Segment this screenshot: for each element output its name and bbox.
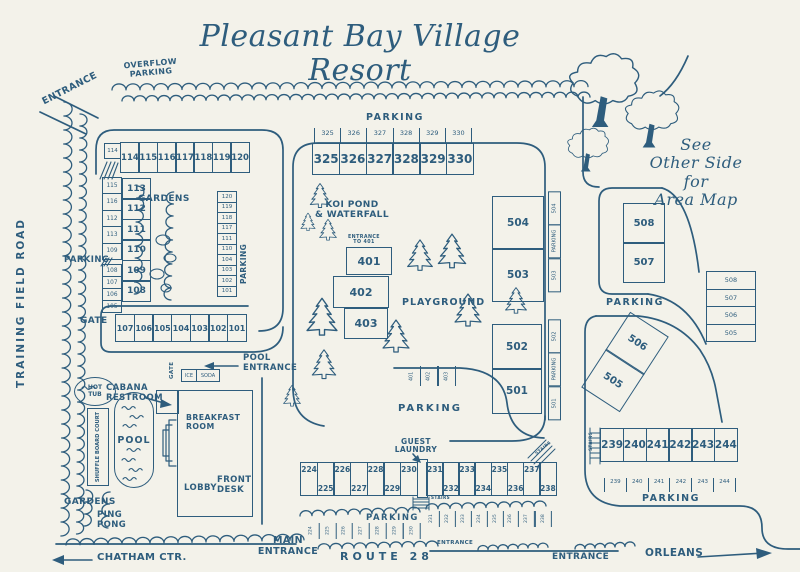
parking-stall: 241 [648, 478, 670, 492]
shuffleboard-court: SHUFFLE BOARD COURT [87, 408, 109, 486]
building-unit: 108 [122, 280, 151, 302]
building-unit: 325 [312, 143, 340, 175]
parking-stall: 228 [370, 523, 387, 539]
buildings-row-239-244: 239240241242243244 [600, 428, 738, 462]
parking-stall: 238 [535, 511, 552, 527]
parking-upper-left-label: PARKING [64, 256, 109, 266]
koi-pond-label: KOI POND & WATERFALL [312, 200, 392, 220]
buildings-col-508-507: 508507 [623, 203, 665, 283]
building-unit: 227 [350, 462, 368, 496]
parking-stall: 503 [548, 258, 561, 292]
parking-stall: 114 [104, 143, 121, 159]
parking-garden-col-label: PARKING [240, 222, 248, 284]
building-unit: 328 [392, 143, 420, 175]
building-unit: 119 [212, 142, 232, 173]
building-unit: 106 [134, 314, 154, 342]
buildings-row-224-230: 224225226227228229230 [300, 462, 418, 496]
chatham-label: CHATHAM CTR. [97, 552, 187, 563]
building-unit: 116 [157, 142, 177, 173]
bay-window [163, 420, 176, 466]
page-title: Pleasant Bay Village Resort [150, 20, 570, 87]
soda-machine: SODA [196, 369, 220, 382]
parking-stalls-garden-col: 120119118117111110104103102101 [217, 192, 237, 297]
building-unit: 224 [300, 462, 318, 496]
buildings-row-231-238: 231232233234235236237238 [426, 462, 556, 496]
parking-stall: 242 [669, 478, 691, 492]
gardens-lower-label: GARDENS [64, 497, 116, 507]
building-unit: 230 [400, 462, 418, 496]
parking-stall: 328 [393, 128, 419, 143]
gate-pool-label: GATE [169, 355, 175, 379]
parking-stall: 401 [404, 366, 421, 386]
parking-stall: 229 [387, 523, 404, 539]
parking-stalls-right-col: 508507506505 [706, 272, 756, 342]
building-unit: 102 [208, 314, 228, 342]
shuffleboard-label: SHUFFLE BOARD COURT [95, 412, 101, 482]
see-other-side-note: See Other Side for Area Map [638, 136, 754, 210]
building-unit: 503 [492, 248, 544, 302]
building-unit: 229 [383, 462, 401, 496]
parking-stall: 227 [353, 523, 370, 539]
parking-stall: 233 [456, 511, 472, 527]
building-unit: 105 [152, 314, 172, 342]
building-unit: 508 [623, 203, 665, 244]
parking-stall: 327 [366, 128, 392, 143]
guest-laundry-label: GUEST LAUNDRY [394, 438, 438, 455]
training-field-road-label: TRAINING FIELD ROAD [16, 168, 28, 388]
building-unit: 118 [193, 142, 213, 173]
building-unit: 114 [120, 142, 140, 173]
building-unit: 103 [190, 314, 210, 342]
building-unit: 507 [623, 242, 665, 283]
building-unit: 329 [419, 143, 447, 175]
building-unit: 241 [646, 428, 670, 462]
parking-stall: 226 [336, 523, 353, 539]
main-building [177, 390, 253, 517]
parking-stalls-left-a: 115116112113109 [102, 178, 122, 260]
parking-stall: 113 [102, 226, 122, 243]
parking-239-label: PARKING [642, 494, 700, 505]
building-unit: 226 [333, 462, 351, 496]
parking-stall: 234 [472, 511, 488, 527]
parking-stalls-bottom-b: 231232233234235236237238 [424, 511, 552, 527]
building-unit: 330 [446, 143, 474, 175]
parking-stall: 330 [445, 128, 472, 143]
breakfast-room-label: BREAKFAST ROOM [186, 414, 240, 431]
parking-stall: 402 [421, 366, 438, 386]
building-unit: 233 [458, 462, 476, 496]
parking-stall: 235 [488, 511, 504, 527]
parking-stall: 112 [102, 210, 122, 227]
building-unit: 111 [122, 219, 151, 241]
buildings-row-325-330: 325326327328329330 [312, 143, 474, 175]
buildings-row-107-101: 107106105104103102101 [115, 314, 247, 342]
parking-stall: 504 [548, 191, 561, 225]
building-unit: 327 [366, 143, 394, 175]
building-unit: 326 [339, 143, 367, 175]
gardens-upper-label: GARDENS [138, 194, 190, 204]
ice-machine: ICE [181, 369, 197, 382]
building-unit: 228 [367, 462, 385, 496]
stairs-239-label: STAIRS [589, 432, 594, 451]
building-unit: 239 [600, 428, 624, 462]
buildings-col-504-503: 504503 [492, 196, 544, 302]
parking-stalls-left-b: 108107106105 [102, 265, 122, 313]
parking-stall: 403 [438, 366, 456, 386]
ping-pong-label: PING PONG [97, 511, 126, 530]
parking-strip-502-501: 502PARKING501 [548, 320, 561, 420]
parking-stall: 505 [706, 324, 756, 343]
parking-stall: 240 [626, 478, 648, 492]
building-unit: 110 [122, 239, 151, 261]
building-unit: 240 [623, 428, 647, 462]
parking-stall: 115 [102, 177, 122, 194]
front-desk-label: FRONT DESK [217, 476, 252, 495]
building-unit: 109 [122, 260, 151, 282]
parking-stall: 236 [503, 511, 519, 527]
parking-stall: PARKING [548, 352, 561, 386]
parking-stalls-239-row: 239240241242243244 [604, 478, 736, 492]
building-unit: 117 [175, 142, 195, 173]
building-unit: 504 [492, 196, 544, 250]
parking-stall: 232 [440, 511, 456, 527]
building-unit: 235 [491, 462, 509, 496]
building-unit: 234 [474, 462, 492, 496]
entrance-small-label: ENTRANCE [437, 540, 473, 546]
building-unit: 101 [227, 314, 247, 342]
parking-stalls-325-row: 325326327328329330 [314, 128, 472, 143]
parking-stall: 325 [314, 128, 340, 143]
building-unit: 403 [344, 308, 388, 339]
parking-stall: 507 [706, 289, 756, 308]
main-entrance-label: MAIN ENTRANCE [246, 536, 330, 557]
building-unit: 236 [507, 462, 525, 496]
building-unit: 244 [714, 428, 738, 462]
parking-508-label: PARKING [606, 298, 664, 309]
building-unit: 238 [539, 462, 557, 496]
parking-stall: 239 [604, 478, 626, 492]
building-unit: 401 [346, 247, 392, 275]
entrance-401-label: ENTRANCE TO 401 [347, 235, 381, 246]
building-unit: 242 [668, 428, 692, 462]
building-unit: 115 [138, 142, 158, 173]
building-unit: 231 [426, 462, 444, 496]
lobby-label: LOBBY [184, 484, 217, 494]
building-unit: 232 [442, 462, 460, 496]
building-unit: 120 [230, 142, 250, 173]
building-unit: 502 [492, 324, 542, 370]
building-unit: 402 [333, 276, 389, 308]
chatham-arrow-icon [52, 555, 92, 565]
parking-stalls-mid-small: 401402403 [404, 366, 456, 386]
entrance-bottom-label: ENTRANCE [552, 552, 609, 562]
parking-stall: 237 [519, 511, 535, 527]
pool-entrance-label: POOL ENTRANCE [243, 354, 297, 373]
building-unit: 501 [492, 368, 542, 414]
parking-stall: 506 [706, 306, 756, 325]
parking-stall: 508 [706, 271, 756, 290]
building-unit: 107 [115, 314, 135, 342]
parking-stall: 231 [424, 511, 440, 527]
parking-325-label: PARKING [366, 113, 424, 124]
parking-stall: 230 [403, 523, 421, 539]
parking-stall: PARKING [548, 224, 561, 258]
parking-stall: 326 [340, 128, 366, 143]
parking-stall: 101 [217, 286, 237, 298]
playground-label: PLAYGROUND [402, 298, 485, 309]
cabana-building [156, 390, 179, 414]
pool: POOL [114, 392, 154, 488]
buildings-col-502-501: 502501 [492, 324, 542, 414]
orleans-label: ORLEANS [645, 548, 703, 560]
parking-stall: 243 [691, 478, 713, 492]
building-unit: 104 [171, 314, 191, 342]
gate-upper-label: GATE [80, 316, 108, 326]
route-28-label: ROUTE 28 [340, 551, 433, 563]
parking-stall: 502 [548, 319, 561, 353]
parking-stall: 244 [713, 478, 736, 492]
building-unit: 225 [317, 462, 335, 496]
building-unit: 243 [691, 428, 715, 462]
parking-stall: 105 [102, 300, 122, 313]
parking-stall: 501 [548, 386, 561, 420]
parking-stall: 116 [102, 193, 122, 210]
parking-strip-504-503: 504PARKING503 [548, 192, 561, 292]
building-unit: 237 [523, 462, 541, 496]
stairs-mid-label: STAIRS [431, 496, 450, 501]
orleans-arrow-icon [698, 548, 772, 559]
parking-mid-label: PARKING [398, 403, 462, 414]
buildings-row-114-120: 114115116117118119120 [120, 142, 250, 173]
resort-map: Pleasant Bay Village Resort OVERFLOW PAR… [0, 0, 800, 572]
parking-stall: 329 [419, 128, 445, 143]
